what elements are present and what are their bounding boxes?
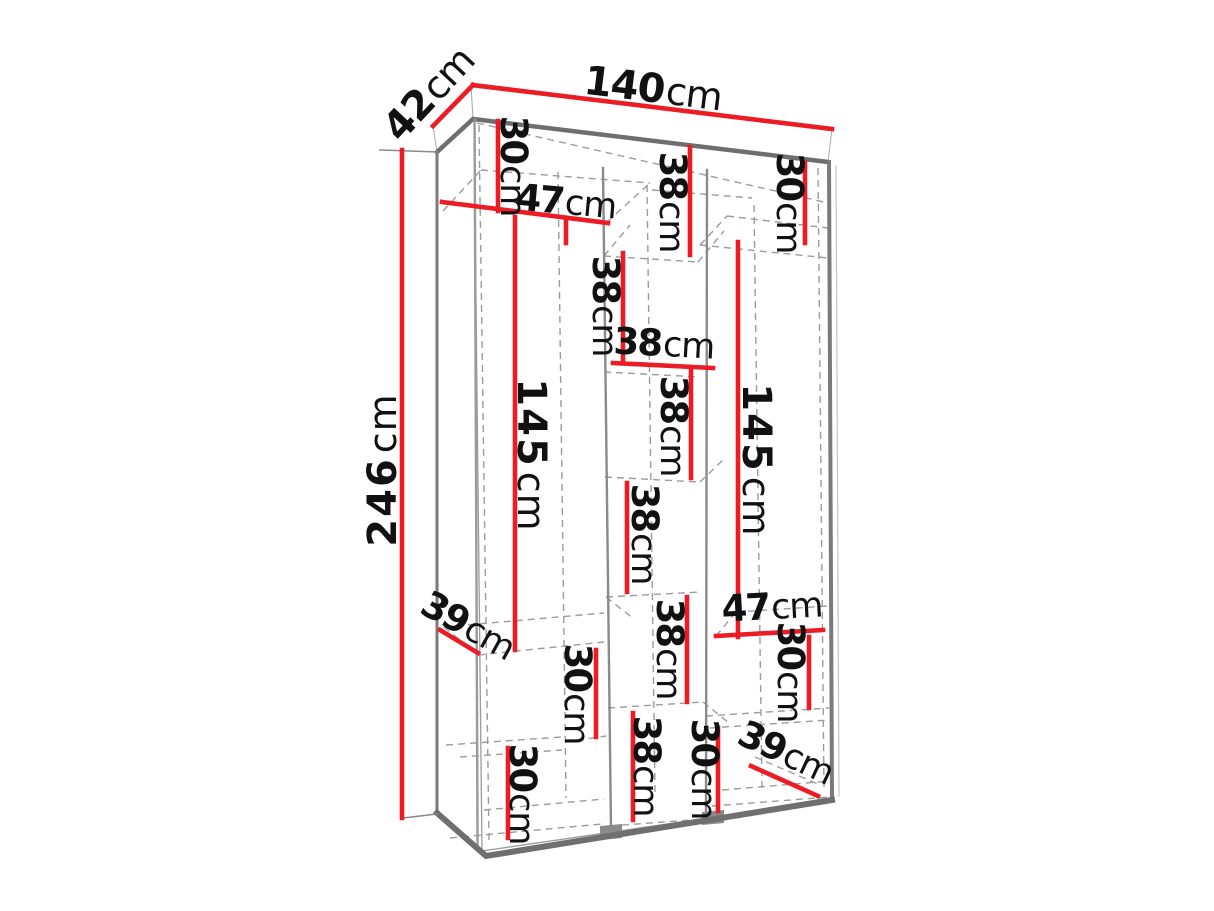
dim-label-center-cubby-3: 38cm: [654, 376, 692, 477]
dim-label-right-top-section: 30cm: [770, 153, 808, 254]
dim-label-left-lower-section-2: 30cm: [503, 744, 541, 845]
dim-label-right-hanging-height: 145cm: [736, 383, 776, 536]
dim-label-left-lower-section-1: 30cm: [558, 644, 596, 745]
dim-label-left-hanging-height: 145cm: [511, 378, 551, 531]
wardrobe-line-art: [0, 0, 1214, 911]
dim-label-center-cubby-4: 38cm: [625, 484, 663, 585]
dim-label-center-cubby-5: 38cm: [650, 599, 688, 700]
dim-label-right-lower-section-1: 30cm: [771, 622, 809, 723]
dim-label-overall-height: 246cm: [363, 393, 403, 546]
dim-label-right-lower-section-2: 30cm: [685, 719, 723, 820]
dim-label-center-cubby-1: 38cm: [653, 152, 691, 253]
dim-label-center-column-width: 38cm: [613, 322, 716, 365]
dim-label-center-cubby-6: 38cm: [627, 716, 665, 817]
wardrobe-diagram: 42cm 140cm 246cm 30cm 47cm 145cm 39cm 30…: [0, 0, 1214, 911]
dim-label-left-column-width: 47cm: [514, 179, 618, 226]
